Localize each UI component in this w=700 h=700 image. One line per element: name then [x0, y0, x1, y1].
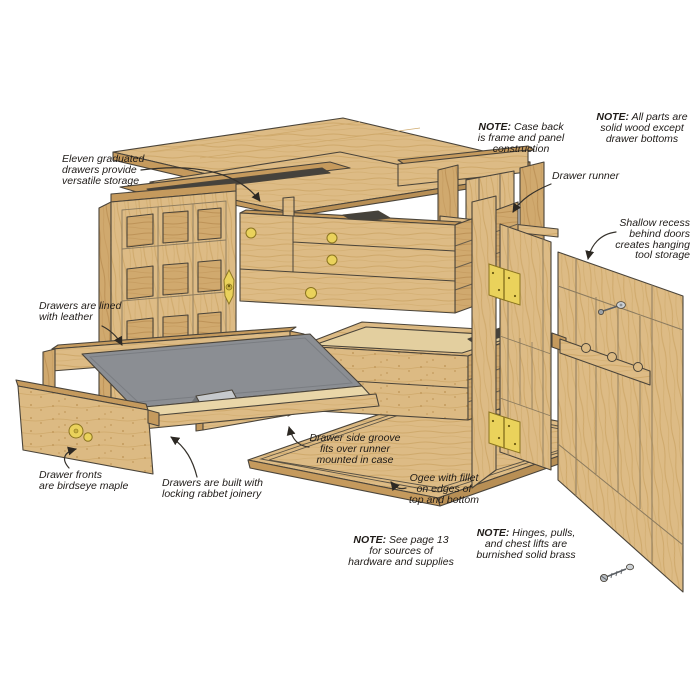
- washer-icon: [626, 564, 633, 570]
- label-drawer-runner: Drawer runner: [552, 171, 619, 182]
- door-panels: [127, 208, 221, 351]
- note-solid-wood: NOTE: All parts are solid wood except dr…: [588, 112, 696, 144]
- label-shallow-recess: Shallow recess behind doors creates hang…: [598, 218, 690, 261]
- illustration-page: Eleven graduated drawers provide versati…: [0, 0, 700, 700]
- label-drawer-fronts: Drawer fronts are birdseye maple: [39, 470, 128, 492]
- leader-line: [171, 437, 197, 477]
- note-brass: NOTE: Hinges, pulls, and chest lifts are…: [468, 528, 584, 560]
- screw-icon: [600, 564, 633, 581]
- label-ogee: Ogee with fillet on edges of top and bot…: [398, 473, 490, 505]
- label-lined-leather: Drawers are lined with leather: [39, 301, 121, 323]
- label-eleven-drawers: Eleven graduated drawers provide versati…: [62, 154, 144, 186]
- label-rabbet-joinery: Drawers are built with locking rabbet jo…: [162, 478, 263, 500]
- exploded-tool-chest-diagram: [0, 0, 700, 700]
- note-page13: NOTE: See page 13 for sources of hardwar…: [346, 535, 456, 567]
- note-case-back: NOTE: Case back is frame and panel const…: [461, 122, 581, 154]
- label-side-groove: Drawer side groove fits over runner moun…: [303, 433, 407, 465]
